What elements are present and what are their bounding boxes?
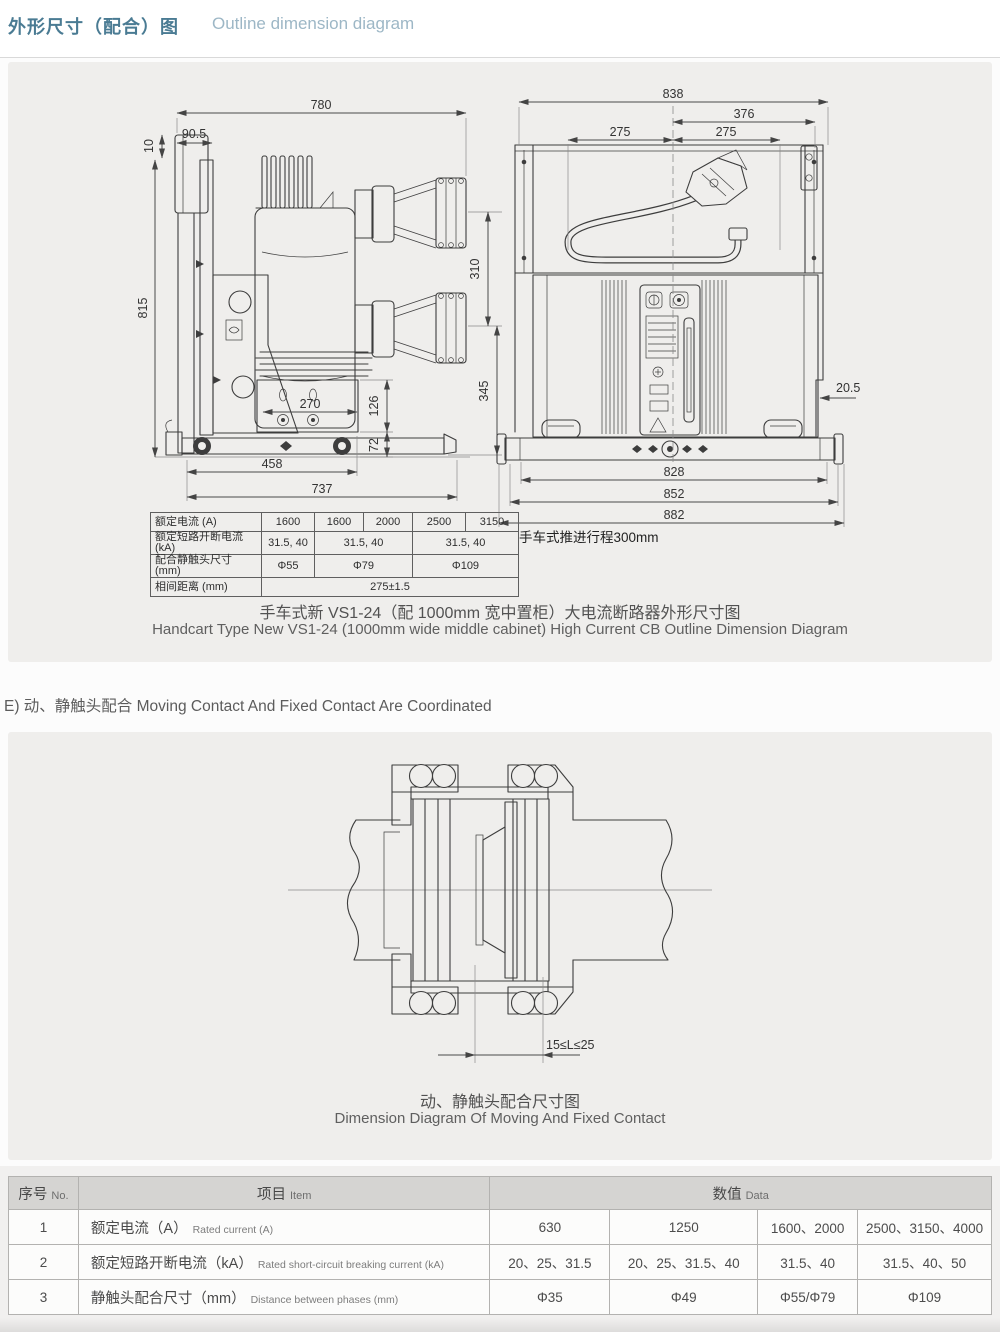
insulation-ribs-left (602, 280, 626, 434)
dim-label: 376 (734, 107, 755, 121)
spec-value: 3150 (466, 513, 519, 532)
dim-label: 882 (664, 508, 685, 522)
dim-label: 780 (311, 98, 332, 112)
spec-value: 31.5, 40 (315, 532, 413, 555)
row-value: 20、25、31.5、40 (610, 1245, 758, 1280)
spec-value: Φ55 (262, 555, 315, 578)
catalog-page: 外形尺寸（配合）图 Outline dimension diagram (0, 0, 1000, 1332)
control-cable (568, 150, 747, 260)
row-value: Φ55/Φ79 (758, 1280, 858, 1315)
control-panel (640, 285, 700, 435)
header-data-en: Data (746, 1190, 769, 1202)
dim-label: 126 (367, 396, 381, 417)
header-no-zh: 序号 (18, 1187, 47, 1203)
table-row: 1 额定电流（A）Rated current (A) 630 1250 1600… (9, 1210, 992, 1245)
item-en: Distance between phases (mm) (251, 1294, 399, 1306)
item-zh: 静触头配合尺寸（mm） (91, 1291, 246, 1307)
row-value: 20、25、31.5 (490, 1245, 610, 1280)
spec-value: 31.5, 40 (413, 532, 519, 555)
header-item-en: Item (290, 1190, 311, 1202)
dim-label: 10 (142, 139, 156, 153)
side-view-dimensions: 780 90.5 10 815 310 345 270 1 (136, 98, 502, 501)
spec-value: 2500 (413, 513, 466, 532)
spec-label: 额定短路开断电流 (kA) (151, 532, 262, 555)
table-row: 3 静触头配合尺寸（mm）Distance between phases (mm… (9, 1280, 992, 1315)
drawing1-caption-en: Handcart Type New VS1-24 (1000mm wide mi… (0, 621, 1000, 638)
row-item: 额定短路开断电流（kA）Rated short-circuit breaking… (78, 1245, 490, 1280)
spec-value: 275±1.5 (262, 578, 519, 597)
row-no: 2 (9, 1245, 79, 1280)
row-value: 2500、3150、4000 (858, 1210, 992, 1245)
dim-label: 270 (300, 397, 321, 411)
page-bottom-shade (0, 1318, 1000, 1332)
row-no: 1 (9, 1210, 79, 1245)
side-view: 780 90.5 10 815 310 345 270 1 (136, 98, 502, 501)
ratings-table: 序号No. 项目Item 数值Data 1 额定电流（A）Rated curre… (8, 1176, 992, 1315)
header-data-zh: 数值 (713, 1187, 742, 1203)
row-value: Φ109 (858, 1280, 992, 1315)
row-no: 3 (9, 1280, 79, 1315)
header-item-zh: 项目 (257, 1187, 286, 1203)
dim-label: 15≤L≤25 (546, 1038, 595, 1052)
spec-label: 相间距离 (mm) (151, 578, 262, 597)
table-header-row: 序号No. 项目Item 数值Data (9, 1177, 992, 1210)
row-item: 额定电流（A）Rated current (A) (78, 1210, 490, 1245)
row-value: Φ49 (610, 1280, 758, 1315)
table-row: 额定电流 (A) 1600 1600 2000 2500 3150 (151, 513, 519, 532)
insulation-ribs-right (702, 280, 726, 434)
item-zh: 额定短路开断电流（kA） (91, 1256, 253, 1272)
drawing2-caption-en: Dimension Diagram Of Moving And Fixed Co… (0, 1110, 1000, 1127)
row-item: 静触头配合尺寸（mm）Distance between phases (mm) (78, 1280, 490, 1315)
header-no-en: No. (51, 1190, 68, 1202)
row-value: Φ35 (490, 1280, 610, 1315)
fixed-contact (476, 765, 573, 1015)
section-e-heading: E) 动、静触头配合 Moving Contact And Fixed Cont… (4, 694, 492, 716)
spec-value: Φ79 (315, 555, 413, 578)
dim-label: 838 (663, 87, 684, 101)
upper-contact-arm (355, 178, 466, 248)
dim-label: 90.5 (182, 127, 206, 141)
spring-ribs (256, 156, 333, 208)
dim-label: 458 (262, 457, 283, 471)
breaker-body (533, 275, 818, 437)
row-value: 630 (490, 1210, 610, 1245)
dim-label: 72 (367, 438, 381, 452)
row-value: 1250 (610, 1210, 758, 1245)
dim-label: 20.5 (836, 381, 860, 395)
item-en: Rated short-circuit breaking current (kA… (258, 1259, 444, 1271)
spec-label: 配合静触头尺寸 (mm) (151, 555, 262, 578)
dim-label: 275 (610, 125, 631, 139)
page-title-en: Outline dimension diagram (212, 14, 414, 34)
contact-coordination-drawing: 15≤L≤25 (280, 737, 720, 1067)
table-row: 相间距离 (mm) 275±1.5 (151, 578, 519, 597)
dim-label: 815 (136, 298, 150, 319)
front-view: 838 376 275 275 20.5 828 852 (497, 87, 860, 545)
spec-value: 1600 (262, 513, 315, 532)
header-data: 数值Data (490, 1177, 992, 1210)
travel-note: 手车式推进行程300mm (519, 529, 659, 545)
drawing2-caption-zh: 动、静触头配合尺寸图 (0, 1088, 1000, 1112)
drawing1-caption-zh: 手车式新 VS1-24（配 1000mm 宽中置柜）大电流断路器外形尺寸图 (0, 599, 1000, 623)
table-row: 2 额定短路开断电流（kA）Rated short-circuit breaki… (9, 1245, 992, 1280)
base-rail (497, 434, 843, 464)
table-row: 配合静触头尺寸 (mm) Φ55 Φ79 Φ109 (151, 555, 519, 578)
dim-label: 345 (477, 381, 491, 402)
item-zh: 额定电流（A） (91, 1221, 188, 1237)
spec-value: 31.5, 40 (262, 532, 315, 555)
dim-label: 310 (468, 259, 482, 280)
row-value: 1600、2000 (758, 1210, 858, 1245)
spec-table: 额定电流 (A) 1600 1600 2000 2500 3150 额定短路开断… (150, 512, 519, 597)
dim-label: 275 (716, 125, 737, 139)
row-value: 31.5、40 (758, 1245, 858, 1280)
row-value: 31.5、40、50 (858, 1245, 992, 1280)
spec-value: 2000 (364, 513, 413, 532)
table-row: 额定短路开断电流 (kA) 31.5, 40 31.5, 40 31.5, 40 (151, 532, 519, 555)
spec-value: 1600 (315, 513, 364, 532)
dim-label: 852 (664, 487, 685, 501)
dim-label: 828 (664, 465, 685, 479)
lower-contact-arm (355, 293, 466, 363)
item-en: Rated current (A) (193, 1224, 274, 1236)
breaker-outline-drawing: 780 90.5 10 815 310 345 270 1 (50, 80, 900, 545)
header-no: 序号No. (9, 1177, 79, 1210)
dim-label: 737 (312, 482, 333, 496)
page-title-zh: 外形尺寸（配合）图 (8, 13, 179, 39)
header-item: 项目Item (78, 1177, 490, 1210)
spec-value: Φ109 (413, 555, 519, 578)
spec-label: 额定电流 (A) (151, 513, 262, 532)
